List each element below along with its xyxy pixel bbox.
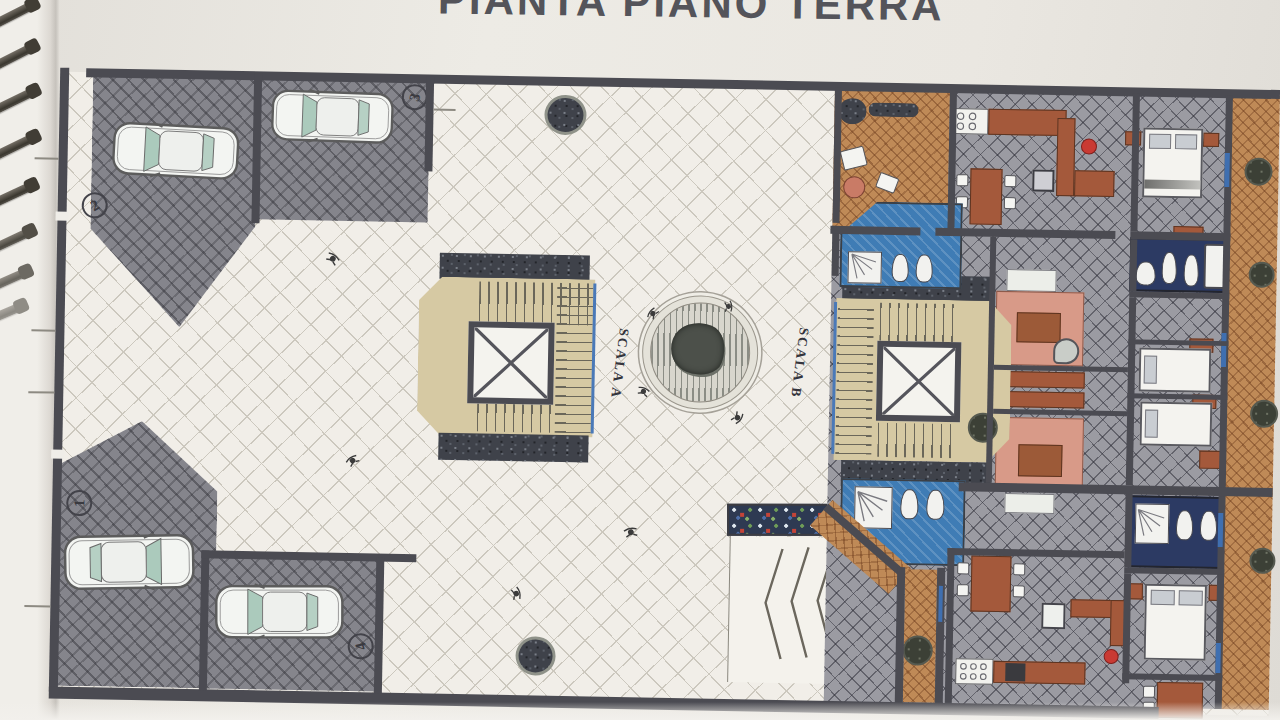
wall: [1124, 493, 1132, 567]
window-icon: [1221, 333, 1227, 367]
parking-number: 4: [352, 641, 370, 652]
stair-treads: [877, 423, 958, 458]
bidet-icon: [1200, 511, 1218, 541]
blanket-edge: [1144, 180, 1200, 190]
appliance-icon: [1005, 663, 1025, 681]
wall: [830, 226, 920, 236]
pillow-icon: [1006, 269, 1056, 292]
car-icon: [110, 118, 241, 183]
binding-coil-icon: [0, 0, 39, 30]
sink-icon: [1135, 261, 1155, 285]
table-icon: [843, 176, 865, 198]
bidet-icon: [915, 254, 933, 282]
stair-treads: [879, 303, 960, 342]
parking-number: 3: [406, 91, 424, 103]
shower-icon: [847, 251, 882, 284]
planter-icon: [838, 98, 866, 125]
elevator-shaft-icon: [467, 321, 554, 405]
chair-icon: [840, 146, 868, 171]
chair-icon: [1004, 175, 1016, 187]
pillow-icon: [1145, 410, 1159, 438]
bed-icon: [1139, 347, 1212, 392]
bed-icon: [1140, 402, 1213, 447]
chair-icon: [1013, 585, 1025, 597]
shower-icon: [1135, 503, 1170, 544]
pillow-icon: [1144, 356, 1158, 384]
bed-icon: [1142, 128, 1203, 199]
car-icon: [63, 530, 196, 594]
stair-treads: [477, 403, 554, 432]
stair-treads: [835, 302, 874, 455]
parking-number: 1: [71, 499, 88, 507]
plant-icon: [1250, 400, 1279, 429]
binding-coil-icon: [0, 266, 33, 295]
bidet-icon: [926, 490, 945, 520]
chair-icon: [1013, 563, 1025, 575]
chair-icon: [875, 172, 899, 194]
pillow-icon: [1179, 590, 1203, 605]
dining-table-icon: [970, 168, 1003, 225]
chair-icon: [1004, 197, 1016, 209]
appliance-icon: [1032, 170, 1054, 192]
wall: [1129, 239, 1137, 291]
stair-landing: [438, 433, 588, 463]
elevator-shaft-icon: [876, 341, 961, 423]
window-icon: [1224, 153, 1230, 187]
car-icon: [214, 582, 344, 642]
rug-icon: [1016, 312, 1061, 343]
shower-icon: [854, 486, 893, 529]
stove-icon: [955, 658, 993, 685]
page-title: PIANTA PIANO TERRA: [438, 0, 945, 31]
pillow-icon: [1151, 590, 1175, 605]
binding-coil-icon: [0, 300, 28, 329]
bed-icon: [1144, 584, 1207, 661]
binding-coil-icon: [0, 225, 36, 255]
bathroom: [1129, 237, 1228, 293]
bench-icon: [869, 102, 919, 117]
pillow-icon: [1149, 134, 1171, 149]
chair-icon: [957, 584, 969, 596]
binding-coil-icon: [0, 85, 40, 116]
spiral-binding: [0, 0, 60, 340]
bidet-icon: [1183, 254, 1199, 286]
door-gap: [55, 212, 68, 221]
plant-icon: [1249, 548, 1275, 574]
chair-icon: [957, 562, 969, 574]
stair-treads: [555, 283, 594, 434]
toilet-icon: [1176, 510, 1194, 540]
rug-icon: [1018, 444, 1063, 477]
binding-coil-icon: [0, 41, 39, 73]
binding-coil-icon: [0, 179, 38, 209]
kitchen-counter: [988, 109, 1066, 136]
dining-table-icon: [970, 555, 1011, 612]
pillow-icon: [1175, 134, 1197, 149]
dresser-icon: [999, 371, 1085, 389]
stair-core-b: [821, 274, 1013, 489]
toilet-icon: [1161, 252, 1177, 284]
window-icon: [1215, 643, 1221, 673]
door-gap: [51, 450, 64, 459]
kitchen-counter: [1056, 118, 1075, 196]
chair-icon: [1143, 686, 1155, 698]
toilet-icon: [900, 489, 919, 519]
bathroom: [1127, 495, 1223, 569]
parking-number: 2: [87, 196, 102, 215]
window-icon: [1218, 513, 1224, 547]
window-icon: [938, 586, 943, 622]
nightstand-icon: [1203, 133, 1219, 147]
pillow-icon: [1004, 493, 1054, 514]
paper-edge: [0, 702, 1280, 720]
kitchen-counter: [1074, 170, 1114, 197]
person-figure-icon: [719, 297, 738, 316]
floor-plan: 2 3 1 4 SCALA A: [46, 62, 1280, 720]
toilet-icon: [891, 254, 909, 282]
car-icon: [268, 86, 396, 146]
dresser-icon: [998, 391, 1084, 409]
stair-core-a: [416, 252, 607, 462]
fridge-icon: [1041, 603, 1065, 629]
chair-icon: [956, 174, 968, 186]
